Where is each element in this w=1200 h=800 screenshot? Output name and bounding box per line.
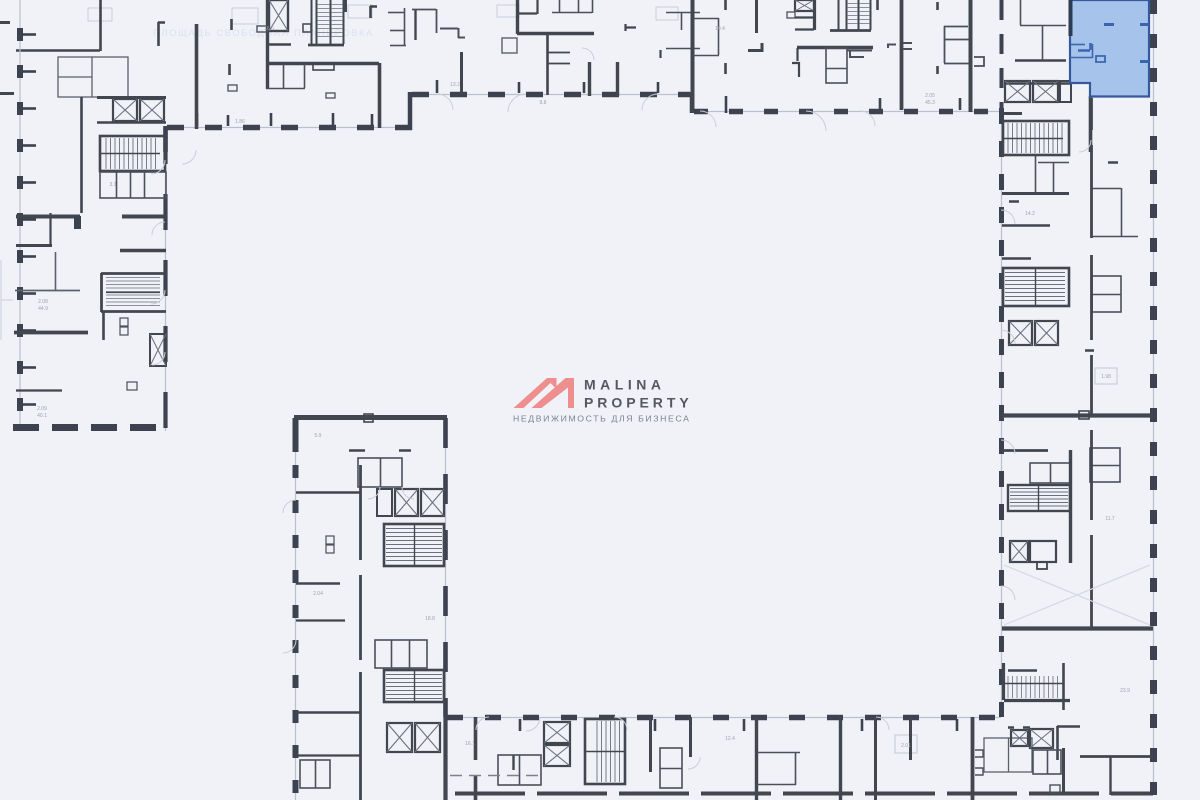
svg-text:13.2: 13.2 <box>450 82 460 88</box>
svg-text:14.2: 14.2 <box>1025 211 1035 217</box>
svg-text:16.6: 16.6 <box>264 26 274 32</box>
svg-text:23.9: 23.9 <box>1120 688 1130 694</box>
svg-text:1.86: 1.86 <box>235 119 245 125</box>
svg-text:12.4: 12.4 <box>725 736 735 742</box>
svg-text:5.9: 5.9 <box>315 433 322 439</box>
svg-text:2.05: 2.05 <box>925 93 935 99</box>
svg-text:2.09: 2.09 <box>37 406 47 412</box>
svg-text:11.7: 11.7 <box>1105 516 1115 522</box>
svg-text:40.1: 40.1 <box>37 413 47 419</box>
svg-text:PROPERTY: PROPERTY <box>584 395 693 411</box>
svg-text:НЕДВИЖИМОСТЬ ДЛЯ БИЗНЕСА: НЕДВИЖИМОСТЬ ДЛЯ БИЗНЕСА <box>513 414 690 424</box>
svg-text:2.08: 2.08 <box>38 299 48 305</box>
svg-text:45.3: 45.3 <box>925 100 935 106</box>
svg-text:16.1: 16.1 <box>465 741 475 747</box>
svg-text:1.98: 1.98 <box>1101 374 1111 380</box>
svg-text:18.8: 18.8 <box>425 616 435 622</box>
svg-text:44.9: 44.9 <box>38 306 48 312</box>
svg-text:2.04: 2.04 <box>313 591 323 597</box>
svg-text:9.8: 9.8 <box>540 100 547 106</box>
svg-text:2.01: 2.01 <box>901 743 911 749</box>
svg-text:10.4: 10.4 <box>715 26 725 32</box>
svg-text:3.1: 3.1 <box>110 182 117 188</box>
svg-text:MALINA: MALINA <box>584 377 665 393</box>
